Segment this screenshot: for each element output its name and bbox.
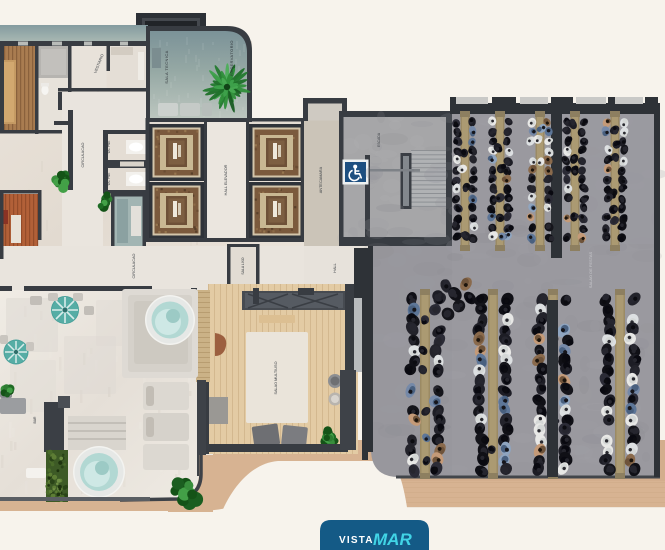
svg-text:ANTECAMARA: ANTECAMARA (319, 166, 323, 193)
svg-text:CIRCULACAO: CIRCULACAO (81, 143, 85, 168)
svg-text:HALL: HALL (333, 263, 337, 273)
svg-text:SALAO DE FESTAS: SALAO DE FESTAS (588, 251, 593, 288)
svg-text:HALL ELEVADOR: HALL ELEVADOR (224, 164, 228, 195)
svg-text:BAR: BAR (33, 416, 37, 424)
svg-text:SALAO MULTIUSO: SALAO MULTIUSO (274, 361, 278, 394)
svg-text:SALA TECNICA: SALA TECNICA (164, 50, 169, 83)
svg-text:VISTA: VISTA (339, 535, 374, 546)
svg-text:MAR: MAR (373, 530, 412, 549)
svg-text:RESERVATORIO: RESERVATORIO (229, 40, 234, 76)
svg-text:CIRCULACAO: CIRCULACAO (132, 254, 136, 279)
svg-text:SALA LIXO: SALA LIXO (241, 257, 245, 275)
